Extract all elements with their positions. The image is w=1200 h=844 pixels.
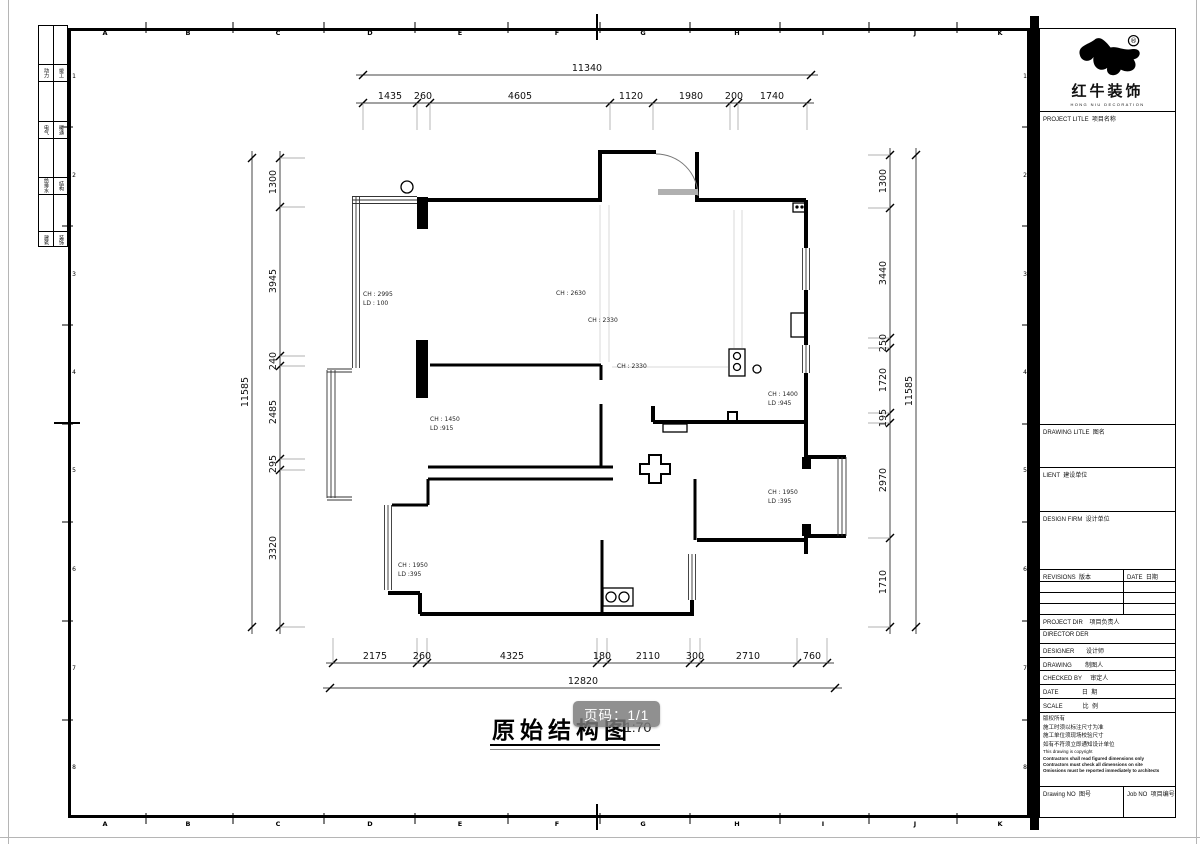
room-label: LD :945: [768, 400, 792, 407]
dim-label: 295: [268, 455, 279, 473]
wall-notch: [728, 412, 737, 421]
walls-inner: [392, 365, 695, 614]
titleblock-director: DIRECTOR DER: [1039, 630, 1176, 644]
room-label: CH : 1450: [430, 416, 460, 423]
grid-letter: G: [640, 29, 645, 37]
grid-letter: F: [555, 820, 559, 828]
cross-column: [640, 455, 670, 483]
grid-letter: E: [458, 29, 462, 37]
title-underline-2: [490, 749, 660, 750]
guide-lines: [600, 205, 742, 367]
dim-label: 2110: [636, 651, 660, 662]
room-label: CH : 2330: [617, 363, 647, 370]
dim-label: 1720: [878, 368, 889, 392]
bull-logo-icon: ®: [1065, 33, 1151, 79]
room-label: CH : 2630: [556, 290, 586, 297]
dim-label: 260: [413, 651, 431, 662]
grid-letter: A: [102, 29, 107, 37]
dim-label: 2485: [268, 400, 279, 424]
titleblock-revisions-header: REVISIONS 版本 DATE 日期: [1039, 570, 1176, 582]
row-number: 7: [72, 665, 76, 672]
row-number: 7: [1023, 665, 1027, 672]
dim-label: 4605: [508, 91, 532, 102]
grid-letter: J: [913, 29, 916, 37]
titleblock-numbers: Drawing NO 图号 Job NO 项目编号: [1039, 787, 1176, 818]
note-line: 施工时须以标注尺寸为准: [1043, 724, 1172, 733]
row-number: 2: [72, 172, 76, 179]
grid-letter: K: [997, 820, 1003, 828]
room-annotations: CH : 2995 LD : 100 CH : 2630 CH : 2330 C…: [363, 290, 798, 578]
brand-name: 红牛装饰: [1071, 80, 1143, 101]
dim-label: 4325: [500, 651, 524, 662]
titleblock-scale: SCALE 比 例: [1039, 699, 1176, 713]
grid-letter: H: [734, 29, 739, 37]
dim-label: 12820: [568, 676, 598, 687]
revisions-label: REVISIONS 版本: [1040, 570, 1123, 581]
dimension-lines: [248, 71, 920, 692]
titleblock-drawing-by: DRAWING 制图人: [1039, 658, 1176, 671]
titleblock-drawing-title: DRAWING LITLE 图名: [1039, 425, 1176, 468]
grid-letter: D: [367, 820, 373, 828]
row-number: 1: [1023, 73, 1027, 80]
grid-letter: K: [997, 29, 1003, 37]
grid-letter: J: [913, 820, 916, 828]
dim-label: 300: [686, 651, 704, 662]
dim-label: 1120: [619, 91, 643, 102]
row-number: 8: [1023, 764, 1027, 771]
grid-letter: B: [186, 820, 191, 828]
grid-letter: I: [822, 29, 824, 37]
note-line: 版权所有: [1043, 715, 1172, 724]
row-number: 3: [72, 271, 76, 278]
revisions-date-label: DATE 日期: [1123, 570, 1175, 581]
dim-label: 3440: [878, 261, 889, 285]
note-line: 如有不符须立即通知设计单位: [1043, 741, 1172, 750]
floor-drain: [753, 365, 761, 373]
walls-outer: [388, 152, 846, 614]
grid-letter: A: [102, 820, 107, 828]
drawing-no-label: Drawing NO 图号: [1040, 787, 1123, 817]
basin-bowl: [606, 592, 616, 602]
grid-letter: F: [555, 29, 559, 37]
shelf: [663, 424, 687, 432]
row-number: 2: [1023, 172, 1027, 179]
row-number: 8: [72, 764, 76, 771]
dim-label: 1300: [268, 170, 279, 194]
brand-subtitle: HONG NIU DECORATION: [1070, 102, 1144, 107]
titleblock-client: LIENT 建设单位: [1039, 468, 1176, 512]
dim-label: 1980: [679, 91, 703, 102]
grid-letter: D: [367, 29, 373, 37]
row-number: 6: [72, 566, 76, 573]
titleblock-date: DATE 日 期: [1039, 685, 1176, 699]
titleblock-project-title: PROJECT LITLE 项目名称: [1039, 112, 1176, 425]
dim-label: 11340: [572, 63, 602, 74]
grid-letter: E: [458, 820, 462, 828]
note-line: This drawing is copyright: [1043, 749, 1172, 756]
dim-label: 760: [803, 651, 821, 662]
dim-label: 3945: [268, 269, 279, 293]
titleblock-logo: ® 红牛装饰 HONG NIU DECORATION: [1039, 28, 1176, 112]
gas-pipe: [401, 181, 413, 193]
note-line-bold: Omissions must be reported immediately t…: [1043, 768, 1172, 774]
dim-label: 1300: [878, 169, 889, 193]
revision-row: [1039, 582, 1176, 593]
titleblock-project-dir: PROJECT DIR 项目负责人: [1039, 615, 1176, 630]
dim-label: 250: [878, 334, 889, 352]
dim-label: 11585: [240, 377, 251, 407]
grid-letter: H: [734, 820, 739, 828]
dim-label: 180: [593, 651, 611, 662]
room-label: LD : 100: [363, 300, 388, 307]
room-label: LD :915: [430, 425, 454, 432]
electric-box-dot: [801, 206, 803, 208]
titleblock-design-firm: DESIGN FIRM 设计单位: [1039, 512, 1176, 570]
dim-label: 2175: [363, 651, 387, 662]
grid-letter: B: [186, 29, 191, 37]
room-label: CH : 2995: [363, 291, 393, 298]
row-number: 3: [1023, 271, 1027, 278]
dim-label: 260: [414, 91, 432, 102]
room-label: LD :395: [398, 571, 422, 578]
grid-letter: C: [276, 29, 281, 37]
basin-bowl: [619, 592, 629, 602]
dim-label: 3320: [268, 536, 279, 560]
drawing-sheet: 动力竣工电气暖通给排水结构建筑装饰: [0, 0, 1200, 844]
kitchen-cabinet: [791, 313, 806, 337]
room-label: LD :395: [768, 498, 792, 505]
row-number: 1: [72, 73, 76, 80]
titleblock-notes: 版权所有 施工时须以标注尺寸为准 施工单位须现场校验尺寸 如有不符须立即通知设计…: [1039, 713, 1176, 787]
entry-door: [656, 154, 698, 196]
door-leaf: [658, 189, 698, 195]
row-number: 5: [1023, 467, 1027, 474]
dimension-labels: 11340 1435 260 4605 1120 1980 200 1740 2…: [240, 63, 915, 687]
electric-box-dot: [796, 206, 798, 208]
dim-label: 240: [268, 352, 279, 370]
note-line: 施工单位须现场校验尺寸: [1043, 732, 1172, 741]
room-label: CH : 1950: [768, 489, 798, 496]
titleblock-checked-by: CHECKED BY 审定人: [1039, 671, 1176, 685]
dim-label: 200: [725, 91, 743, 102]
row-number: 4: [72, 369, 76, 376]
dim-label: 2970: [878, 468, 889, 492]
room-label: CH : 1950: [398, 562, 428, 569]
stove-burner: [734, 364, 741, 371]
room-label: CH : 2330: [588, 317, 618, 324]
stove-burner: [734, 353, 741, 360]
grid-letter: G: [640, 820, 645, 828]
registered-mark: ®: [1130, 37, 1137, 45]
grid-letter: C: [276, 820, 281, 828]
page-number-badge: 页码：1/1: [573, 701, 660, 727]
dim-label: 11585: [904, 376, 915, 406]
row-number: 4: [1023, 369, 1027, 376]
dim-label: 1740: [760, 91, 784, 102]
row-number: 6: [1023, 566, 1027, 573]
titleblock-designer: DESIGNER 设计师: [1039, 644, 1176, 658]
dim-label: 195: [878, 409, 889, 427]
grid-letter: I: [822, 820, 824, 828]
row-number: 5: [72, 467, 76, 474]
room-label: CH : 1400: [768, 391, 798, 398]
dim-label: 2710: [736, 651, 760, 662]
dim-label: 1435: [378, 91, 402, 102]
revision-row: [1039, 604, 1176, 615]
revision-row: [1039, 593, 1176, 604]
dim-label: 1710: [878, 570, 889, 594]
job-no-label: Job NO 项目编号: [1123, 787, 1175, 817]
